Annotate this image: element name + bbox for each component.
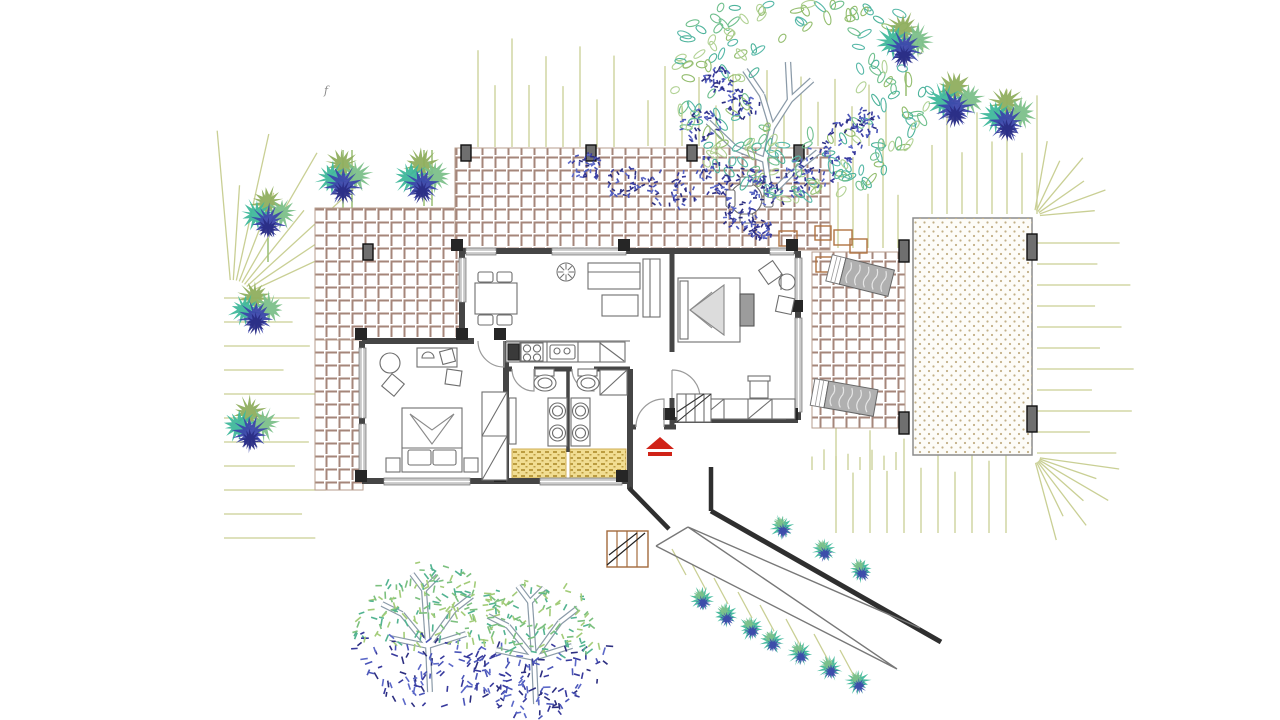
bush <box>978 88 1036 142</box>
shower-floor-tiles <box>512 449 626 478</box>
small-bush <box>690 587 715 611</box>
small-bush <box>770 515 795 540</box>
small-bushes <box>690 515 872 696</box>
bush <box>224 394 280 453</box>
round-trees <box>351 562 613 719</box>
small-bush <box>817 655 843 681</box>
floor-plan-canvas <box>0 0 1280 720</box>
bush <box>395 147 451 203</box>
gravel-patio <box>913 218 1032 455</box>
small-bush <box>812 538 837 562</box>
entrance-arrow <box>646 437 674 456</box>
small-bush <box>740 617 763 641</box>
small-bush <box>850 558 872 583</box>
small-bush <box>845 670 872 695</box>
small-bush <box>715 602 737 628</box>
floor-plan-screenshot: f <box>0 0 1280 720</box>
small-bush <box>760 627 785 653</box>
bush <box>228 281 283 336</box>
round-tree <box>351 562 505 707</box>
bush <box>315 149 374 205</box>
stray-mark: f <box>324 84 328 97</box>
